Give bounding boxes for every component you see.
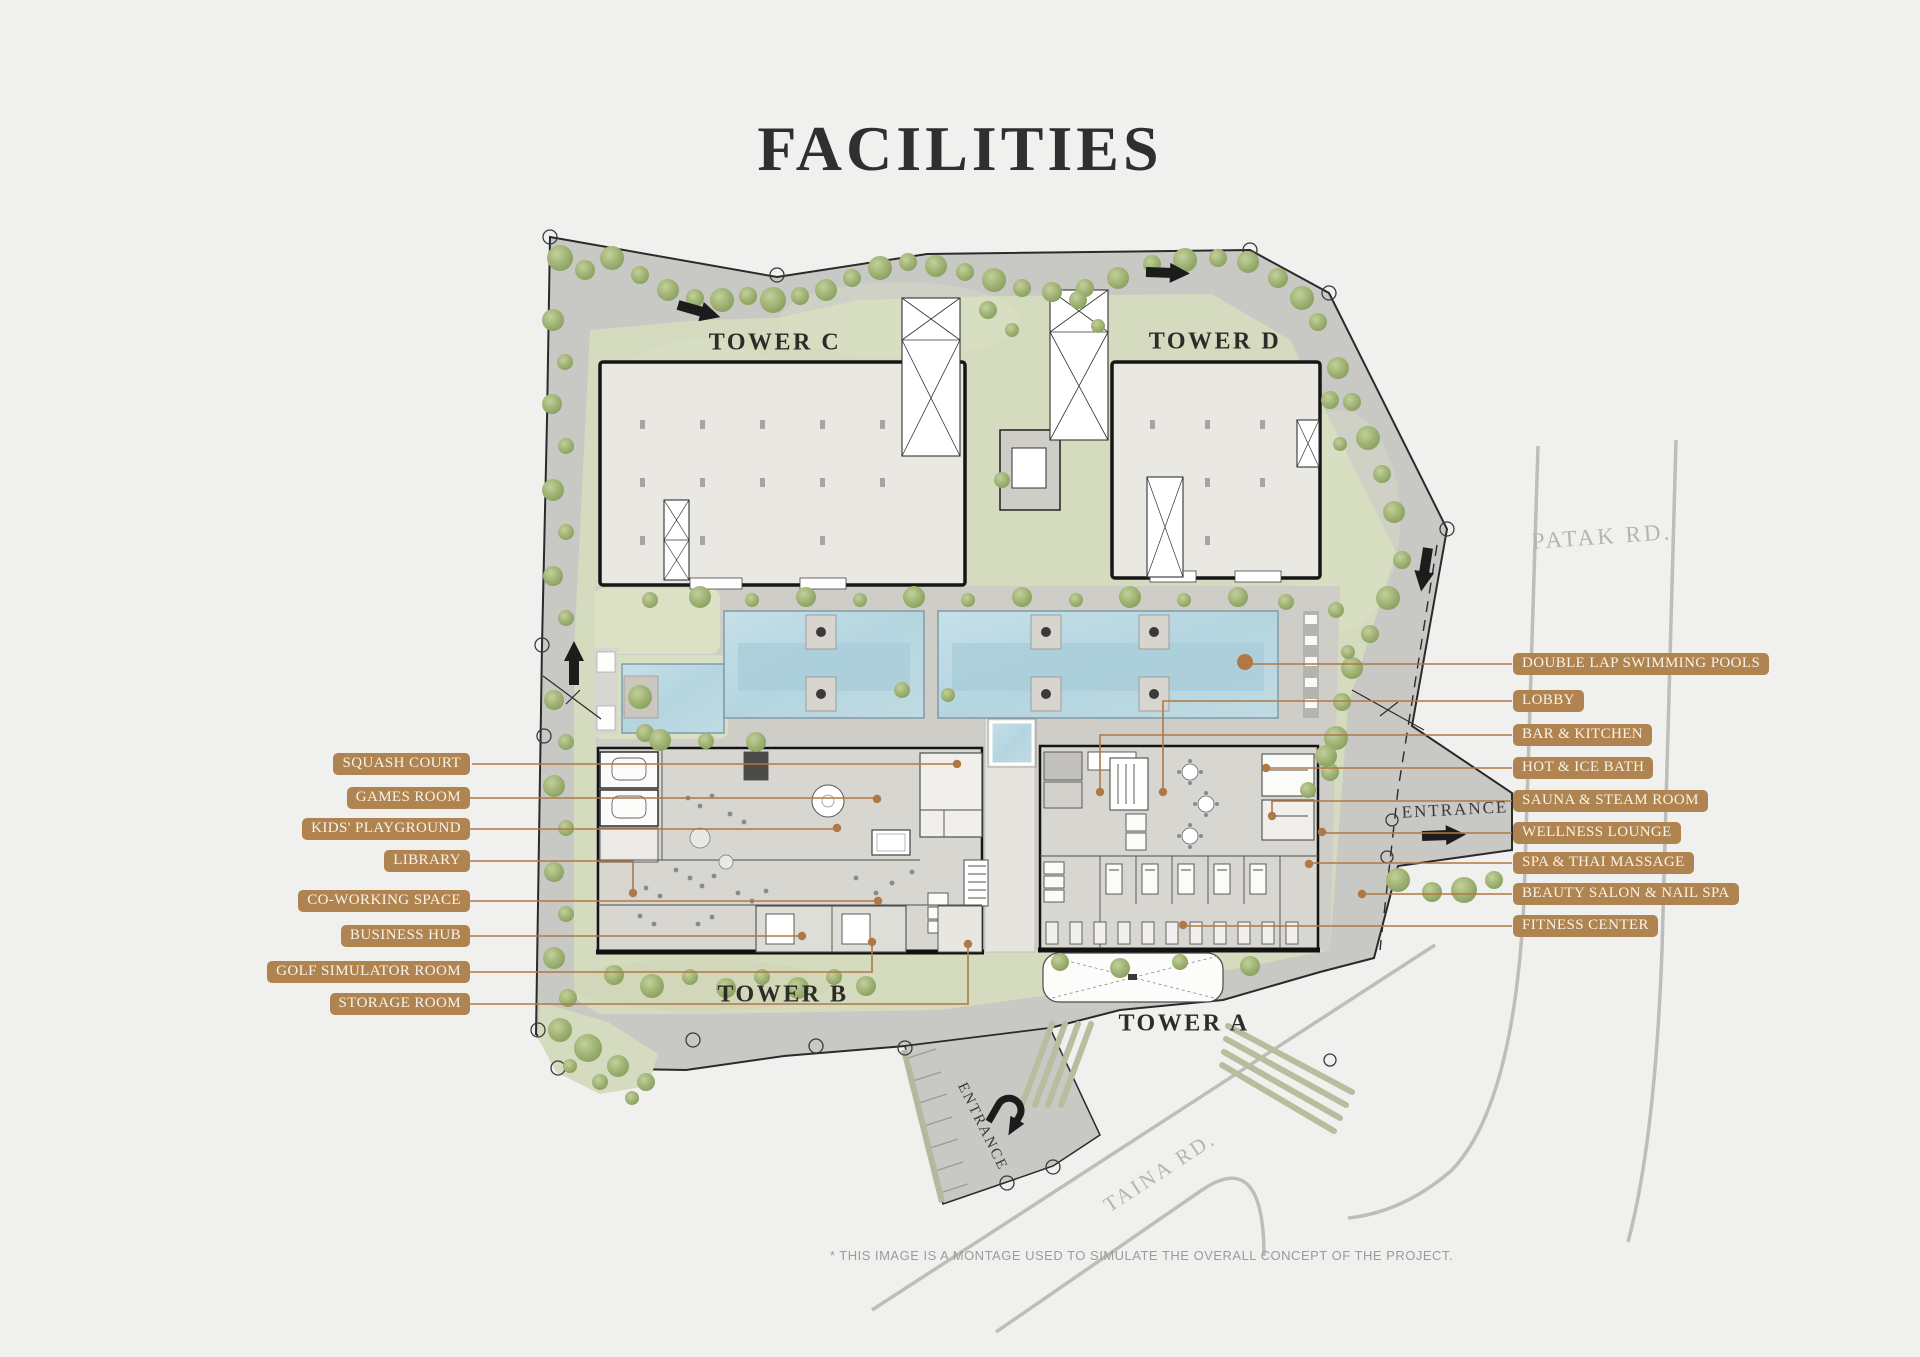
tower-a-pad [1043, 953, 1223, 1002]
hatch-west [902, 298, 960, 456]
lap-pool-east [938, 611, 1278, 718]
tower-link-core [1000, 430, 1060, 510]
amenity-wing-west [596, 748, 988, 952]
facility-label-business-hub: BUSINESS HUB [341, 925, 470, 947]
facility-label-double-lap-swimming-pools: DOUBLE LAP SWIMMING POOLS [1513, 653, 1769, 675]
facility-label-fitness-center: FITNESS CENTER [1513, 915, 1658, 937]
facilities-site-plan-page: FACILITIES TOWER C TOWER D TOWER B TOWER… [0, 0, 1920, 1357]
plunge-pool [988, 719, 1036, 767]
montage-disclaimer: * THIS IMAGE IS A MONTAGE USED TO SIMULA… [830, 1248, 1453, 1263]
hatch-east [1050, 290, 1108, 440]
facility-label-sauna-steam-room: SAUNA & STEAM ROOM [1513, 790, 1708, 812]
facility-label-storage-room: STORAGE ROOM [330, 993, 470, 1015]
facility-label-beauty-salon-nail-spa: BEAUTY SALON & NAIL SPA [1513, 883, 1739, 905]
tower-d-label: TOWER D [1149, 329, 1281, 356]
facility-label-kids-playground: KIDS' PLAYGROUND [302, 818, 470, 840]
tower-d-building [1112, 362, 1320, 582]
facility-label-wellness-lounge: WELLNESS LOUNGE [1513, 822, 1681, 844]
lap-pool-west [724, 611, 924, 718]
facility-label-spa-thai-massage: SPA & THAI MASSAGE [1513, 852, 1694, 874]
facility-label-games-room: GAMES ROOM [347, 787, 470, 809]
tower-b-label: TOWER B [717, 982, 848, 1009]
tower-a-label: TOWER A [1118, 1011, 1249, 1038]
facility-label-hot-ice-bath: HOT & ICE BATH [1513, 757, 1653, 779]
facility-label-bar-kitchen: BAR & KITCHEN [1513, 724, 1652, 746]
page-title: FACILITIES [757, 112, 1162, 186]
hatch-in-tower-c [664, 500, 689, 580]
site-plan-drawing [0, 0, 1920, 1357]
facility-label-lobby: LOBBY [1513, 690, 1584, 712]
tower-c-label: TOWER C [709, 330, 841, 357]
facility-label-library: LIBRARY [384, 850, 470, 872]
facility-label-golf-simulator-room: GOLF SIMULATOR ROOM [267, 961, 470, 983]
facility-label-squash-court: SQUASH COURT [333, 753, 470, 775]
amenity-wing-east [1038, 746, 1320, 950]
facility-label-co-working-space: CO-WORKING SPACE [298, 890, 470, 912]
